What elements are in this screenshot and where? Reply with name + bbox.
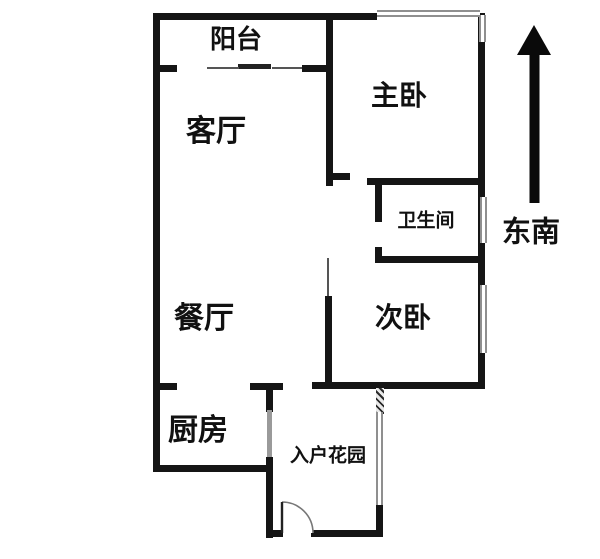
room-label-dining-room: 餐厅 — [174, 304, 234, 334]
room-label-kitchen: 厨房 — [168, 416, 228, 446]
room-label-living-room: 客厅 — [186, 117, 246, 147]
wall-master-left — [326, 13, 333, 186]
wall-bathroom-bottom — [375, 256, 485, 263]
compass-label: 东南 — [502, 218, 560, 247]
balcony-sliding-door-panel — [238, 64, 271, 69]
room-label-master-bedroom: 主卧 — [371, 82, 427, 110]
wall-master-left-stub — [326, 173, 350, 180]
window-bathroom — [480, 197, 487, 243]
entry-door-arc-icon — [271, 494, 317, 538]
wall-garden-bottom — [311, 530, 383, 537]
balcony-sliding-door-track-right — [272, 67, 302, 69]
room-label-balcony: 阳台 — [210, 27, 262, 53]
window-bedroom2 — [480, 285, 487, 353]
wall-top — [153, 13, 377, 20]
wall-bathroom-left — [375, 185, 382, 222]
room-label-entry-garden: 入户花园 — [290, 447, 366, 466]
wall-kitchen-bottom — [153, 465, 268, 472]
wall-balcony-stub-left — [153, 65, 177, 72]
wall-bedroom2-bottom — [312, 382, 485, 389]
floor-plan: 阳台 客厅 主卧 卫生间 次卧 餐厅 厨房 入户花园 东南 — [0, 0, 600, 559]
room-label-second-bedroom: 次卧 — [375, 304, 431, 332]
wall-garden-right-hatch-column — [376, 388, 384, 414]
compass-arrow-icon — [508, 18, 562, 208]
window-master-right — [479, 15, 486, 42]
wall-kitchen-top-stub — [153, 383, 177, 390]
balcony-sliding-door-track-left — [207, 67, 239, 69]
hallway-door-line — [327, 258, 329, 296]
wall-kitchen-garden-divider-top — [266, 390, 273, 412]
room-label-bathroom: 卫生间 — [397, 212, 454, 231]
wall-bedroom2-left — [325, 296, 332, 389]
window-master-top — [377, 10, 480, 17]
wall-master-bottom — [367, 178, 485, 185]
wall-kitchen-garden-T — [250, 383, 283, 390]
window-kitchen-garden — [267, 410, 272, 458]
wall-left — [153, 13, 160, 472]
window-garden-right — [376, 412, 383, 506]
wall-garden-right-bottom — [376, 505, 383, 537]
